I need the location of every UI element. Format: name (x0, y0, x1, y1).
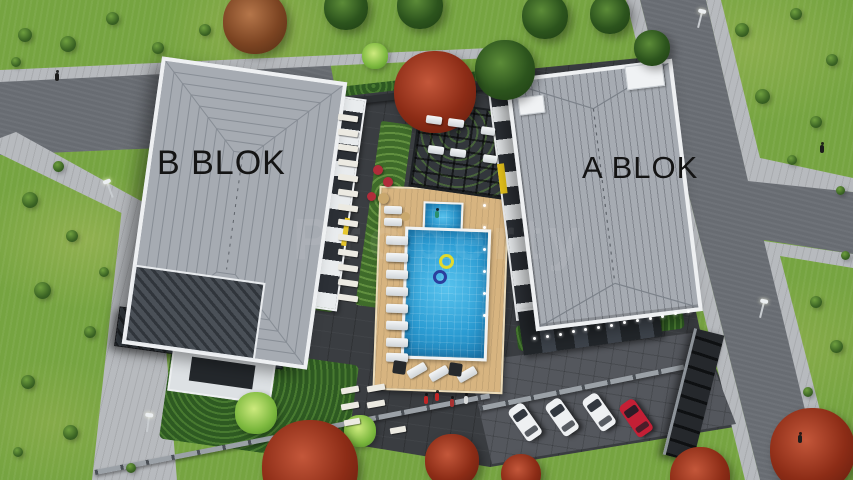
tree-light (235, 392, 277, 434)
person (435, 393, 439, 401)
lounger (386, 320, 408, 330)
person (55, 73, 59, 81)
bush (803, 387, 813, 397)
stone (341, 401, 360, 410)
person (820, 145, 824, 153)
stone (338, 144, 359, 153)
lounger (386, 286, 408, 296)
light-dot (623, 321, 626, 324)
light-dot (597, 326, 600, 329)
tree-red (501, 454, 541, 480)
light-dot (483, 292, 486, 295)
bush (84, 326, 96, 338)
stone (390, 426, 407, 435)
pouf (367, 192, 376, 201)
bush (11, 57, 21, 67)
light-dot (584, 328, 587, 331)
pouf (378, 193, 389, 204)
table-dark (392, 360, 407, 375)
car (581, 391, 618, 432)
bush (66, 230, 78, 242)
lounger (386, 337, 408, 347)
watermark: Property (250, 206, 630, 273)
tree-green (475, 40, 535, 100)
tree-green (634, 30, 670, 66)
bush (106, 12, 119, 25)
stone (338, 174, 359, 183)
bush (826, 54, 838, 66)
lamp (697, 12, 703, 28)
light-dot (636, 319, 639, 322)
car (544, 396, 581, 437)
bush (22, 192, 38, 208)
bush (126, 463, 136, 473)
aerial-site-render: B BLOK A BLOK Property (0, 0, 853, 480)
bush (810, 296, 822, 308)
light-dot (687, 310, 690, 313)
light-dot (559, 333, 562, 336)
lamp (759, 302, 765, 318)
bush (13, 447, 23, 457)
table-dark (448, 362, 463, 377)
lounger (428, 364, 450, 382)
lounger (406, 361, 428, 379)
car (507, 401, 544, 442)
bush (18, 28, 32, 42)
light-dot (674, 312, 677, 315)
block-b-label: B BLOK (157, 144, 286, 183)
bush (755, 89, 770, 104)
bush (790, 8, 802, 20)
tree-red (770, 408, 853, 480)
lounger (428, 145, 445, 155)
stone (338, 189, 359, 198)
light-dot (610, 324, 613, 327)
tree-light (362, 43, 388, 69)
lounger (386, 303, 408, 313)
bush (34, 282, 51, 299)
light-dot (546, 335, 549, 338)
bush (152, 42, 164, 54)
tree-red (670, 447, 730, 480)
light-dot (649, 317, 652, 320)
stone (367, 383, 386, 392)
stone (367, 399, 386, 408)
tree-red (425, 434, 479, 480)
tree-green (522, 0, 568, 39)
light-dot (483, 314, 486, 317)
tree-green (590, 0, 630, 34)
pouf (373, 165, 383, 175)
person (450, 399, 454, 407)
tree-green (397, 0, 443, 29)
lounger (483, 154, 498, 164)
lounger (481, 126, 496, 136)
lounger (450, 148, 467, 158)
bush (830, 340, 843, 353)
bush (53, 161, 64, 172)
person (424, 396, 428, 404)
bush (810, 116, 822, 128)
bush (836, 186, 845, 195)
stone (338, 159, 359, 168)
bush (60, 36, 76, 52)
stone (338, 279, 359, 288)
bush (841, 251, 850, 260)
stone (338, 129, 359, 138)
bush (99, 267, 109, 277)
stone (338, 114, 359, 123)
lamp (146, 416, 150, 432)
bush (21, 375, 35, 389)
pouf (383, 177, 393, 187)
person (798, 435, 802, 443)
bush (63, 425, 78, 440)
tree-brown (223, 0, 287, 54)
stone (341, 385, 360, 394)
bush (735, 23, 749, 37)
block-a-label: A BLOK (582, 150, 698, 186)
tree-green (324, 0, 368, 30)
stone (338, 294, 359, 303)
car (618, 397, 655, 438)
light-dot (661, 315, 664, 318)
lamp (106, 182, 113, 198)
light-dot (572, 330, 575, 333)
light-dot (533, 337, 536, 340)
bush (787, 155, 797, 165)
person (464, 396, 468, 404)
bush (199, 24, 211, 36)
